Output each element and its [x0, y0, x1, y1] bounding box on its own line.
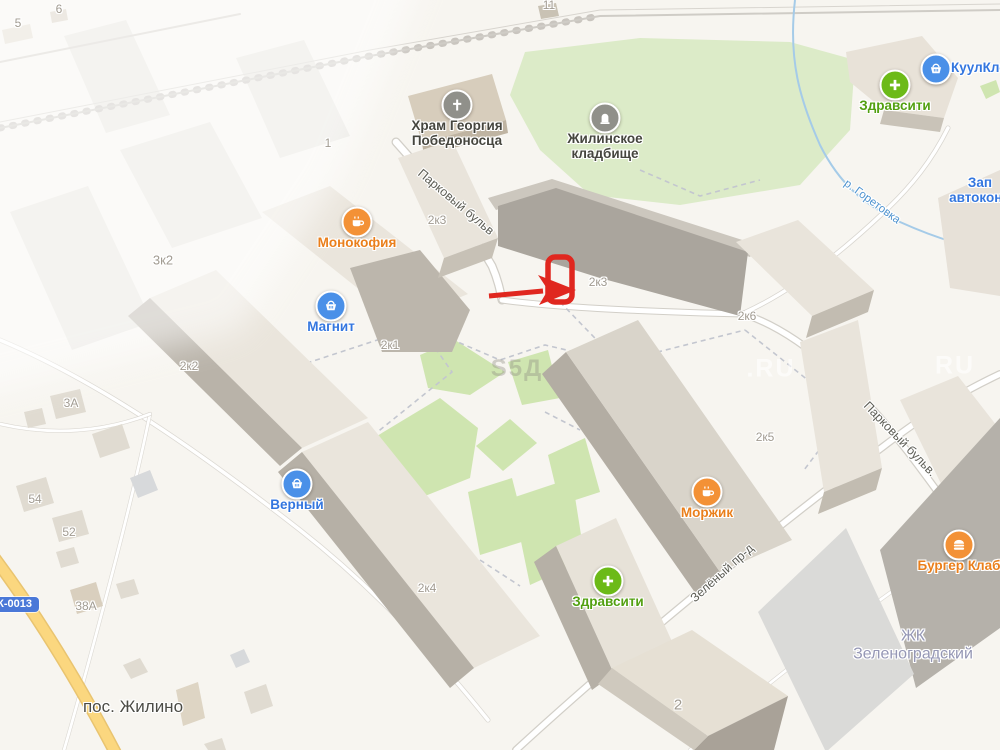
poi-label: Храм ГеоргияПобедоносца	[411, 118, 502, 148]
poi-label: Моржик	[681, 505, 733, 520]
poi-label: Запавтоконд	[949, 175, 1000, 205]
basket-icon	[282, 469, 313, 500]
poi-label: Монокофия	[318, 235, 397, 250]
plus-icon	[593, 566, 624, 597]
road-number-badge: 5К-0013	[0, 597, 39, 612]
burger-icon	[944, 530, 975, 561]
plus-icon	[880, 70, 911, 101]
coffee-icon	[692, 477, 723, 508]
poi-label: Бургер Клаб	[918, 558, 1000, 573]
church-icon	[442, 90, 473, 121]
poi-label: Жилинскоекладбище	[567, 131, 642, 161]
poi-label: Здравсити	[859, 98, 930, 113]
poi-label: Верный	[270, 497, 324, 512]
coffee-icon	[342, 207, 373, 238]
poi-label: Магнит	[307, 319, 355, 334]
basket-icon	[316, 291, 347, 322]
poi-label: Здравсити	[572, 594, 643, 609]
grave-icon	[590, 103, 621, 134]
map-base	[0, 0, 1000, 750]
map-canvas[interactable]: Храм ГеоргияПобедоносцаЖилинскоекладбище…	[0, 0, 1000, 750]
poi-label: КуулКле	[951, 60, 1000, 75]
basket-icon	[921, 54, 952, 85]
